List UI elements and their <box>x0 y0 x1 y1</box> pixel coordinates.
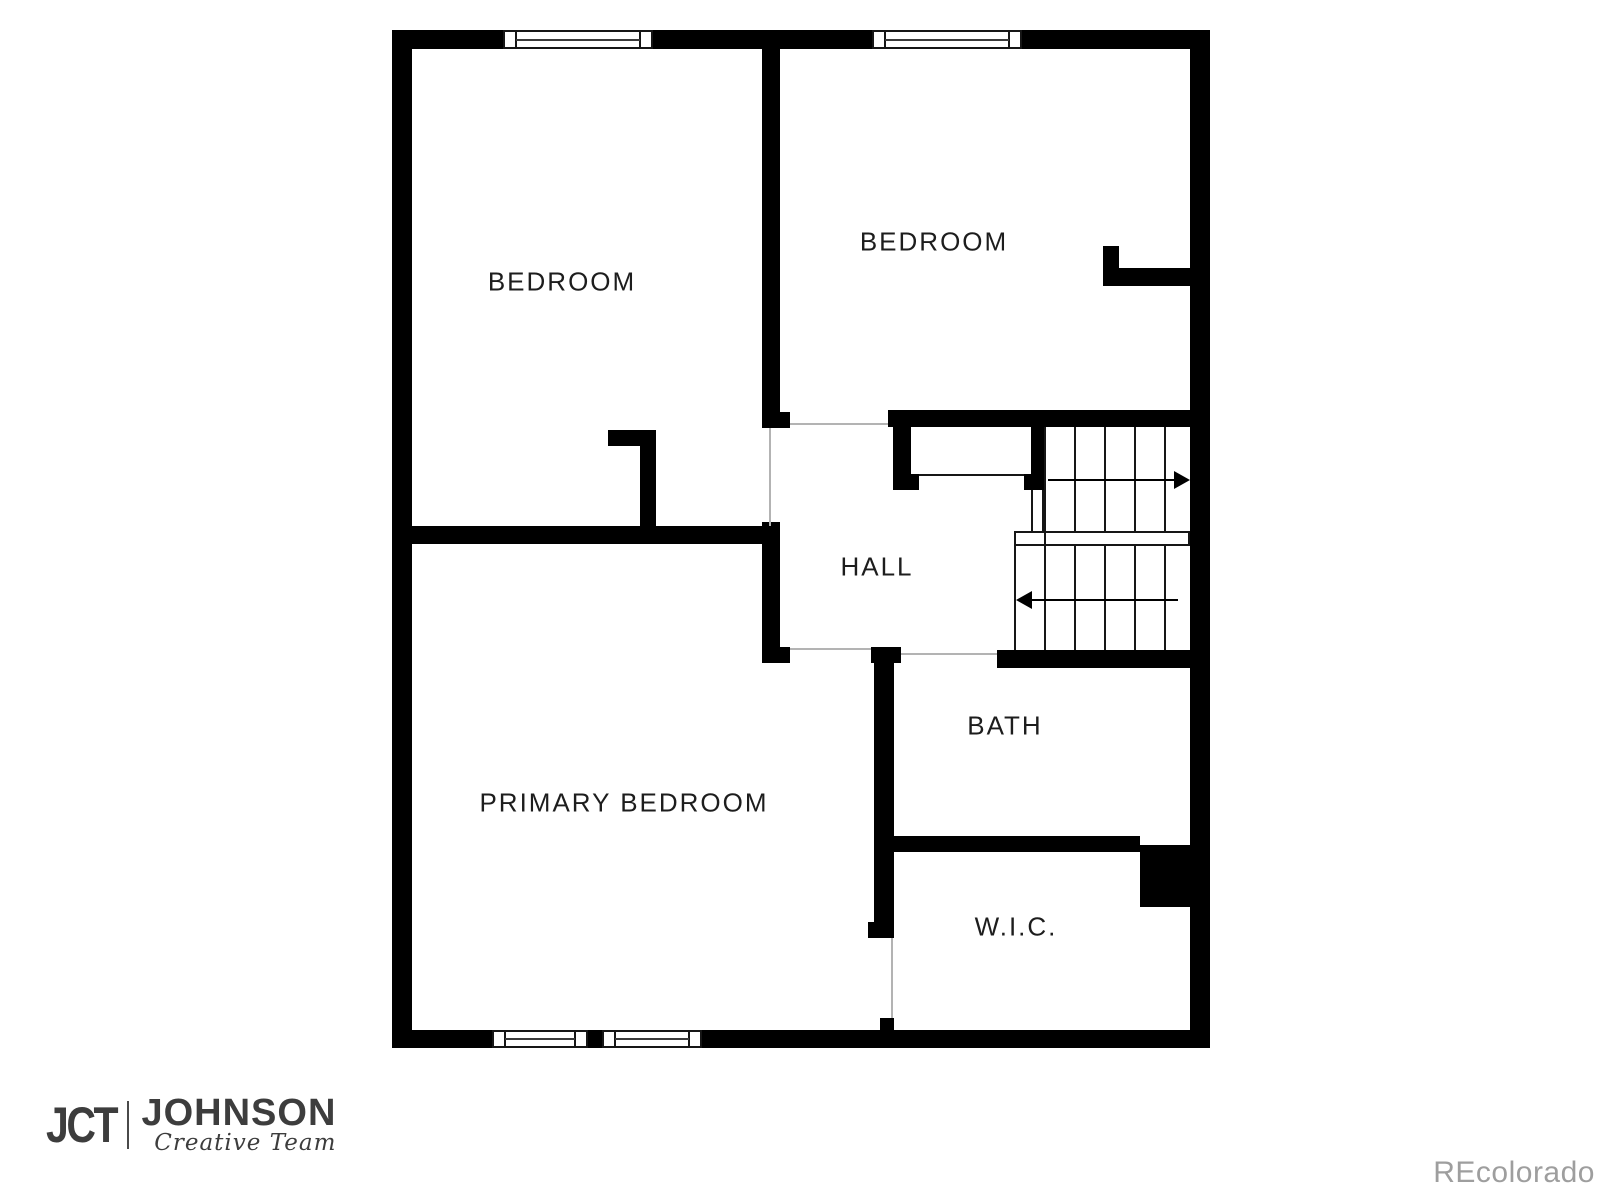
watermark: REcolorado <box>1400 1156 1595 1190</box>
room-label-primary-bedroom: PRIMARY BEDROOM <box>479 788 768 819</box>
door-opening-line <box>790 423 888 425</box>
wall-segment <box>1103 268 1190 286</box>
wall-segment <box>762 412 790 428</box>
door-opening-line <box>790 648 871 650</box>
wall-segment <box>1022 30 1210 49</box>
floor-plan-canvas: BEDROOM BEDROOM HALL BATH W.I.C. PRIMARY… <box>0 0 1600 1200</box>
window-symbol <box>872 30 1022 49</box>
stair-tread-line <box>1074 546 1076 650</box>
stair-tread-line <box>1044 546 1046 650</box>
window-glass-line <box>505 1038 575 1040</box>
wall-segment <box>888 410 1190 427</box>
stair-tread-line <box>1164 546 1166 650</box>
wall-segment <box>392 30 412 1048</box>
stair-landing <box>1014 531 1190 546</box>
wall-segment <box>874 647 894 938</box>
logo-mark: JCT <box>46 1100 116 1150</box>
wall-segment <box>702 1030 1210 1048</box>
window-symbol <box>503 30 653 49</box>
wall-segment <box>412 526 780 544</box>
closet-wall <box>893 427 911 490</box>
closet-front-line <box>919 474 1024 476</box>
logo-tagline: Creative Team <box>141 1130 336 1156</box>
window-glass-line <box>615 1038 689 1040</box>
wall-segment <box>880 1018 894 1030</box>
wall-segment <box>997 650 1190 668</box>
logo-divider <box>127 1101 129 1149</box>
door-opening-line <box>891 938 893 1018</box>
closet-wall <box>1024 474 1031 490</box>
closet-wall <box>1031 427 1044 490</box>
chase-block <box>1140 845 1190 907</box>
closet-wall <box>911 474 919 490</box>
wall-segment <box>392 1030 492 1048</box>
stair-tread-line <box>1104 546 1106 650</box>
logo-name: JOHNSON <box>141 1094 336 1132</box>
wall-segment <box>1190 30 1210 1048</box>
stair-tread-line <box>1134 546 1136 650</box>
window-glass-line <box>516 39 640 41</box>
wall-segment <box>780 647 790 663</box>
wall-segment <box>868 922 874 938</box>
logo-text-block: JOHNSON Creative Team <box>141 1094 336 1156</box>
closet-wall <box>640 430 656 530</box>
room-label-wic: W.I.C. <box>975 912 1058 943</box>
room-label-bedroom-1: BEDROOM <box>488 267 636 298</box>
stair-landing-line <box>1044 531 1046 546</box>
wall-segment <box>653 30 872 49</box>
stairs-down-arrow-icon <box>1032 599 1178 601</box>
door-opening-line <box>901 653 997 655</box>
stair-stringer-line <box>1042 490 1044 531</box>
wall-segment <box>894 836 1140 852</box>
window-symbol <box>602 1030 702 1048</box>
room-label-bedroom-2: BEDROOM <box>860 227 1008 258</box>
window-symbol <box>492 1030 588 1048</box>
wall-segment <box>762 49 780 412</box>
door-opening-line <box>769 428 771 526</box>
stairs-down-arrowhead-icon <box>1016 591 1032 609</box>
johnson-creative-team-logo: JCT JOHNSON Creative Team <box>46 1094 336 1156</box>
window-mullion <box>588 1030 602 1048</box>
stair-stringer-line <box>1031 490 1033 531</box>
room-label-hall: HALL <box>840 552 913 583</box>
stairs-up-arrow-icon <box>1048 479 1174 481</box>
stairs-up-arrowhead-icon <box>1174 471 1190 489</box>
wall-segment <box>762 522 780 663</box>
room-label-bath: BATH <box>967 711 1042 742</box>
stair-tread-line <box>1044 427 1046 531</box>
wall-segment <box>1103 246 1119 268</box>
window-glass-line <box>885 39 1009 41</box>
